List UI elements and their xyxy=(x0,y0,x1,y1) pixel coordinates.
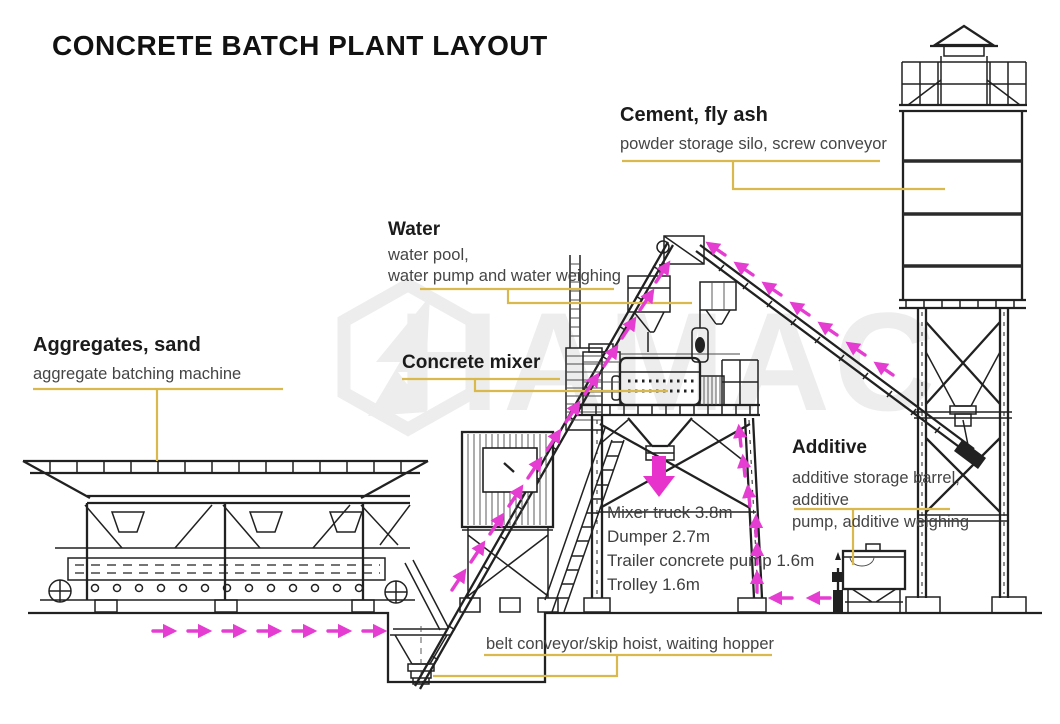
control-room-window xyxy=(483,448,537,492)
label-belt-conveyor: belt conveyor/skip hoist, waiting hopper xyxy=(486,634,774,655)
label-cement: Cement, fly ash powder storage silo, scr… xyxy=(620,104,887,155)
additive-description-1: additive storage barrel, additive xyxy=(792,467,992,511)
label-water: Water water pool, water pump and water w… xyxy=(388,219,621,287)
clearance-list: Mixer truck 3.8m Dumper 2.7m Trailer con… xyxy=(607,501,814,597)
water-description-1: water pool, xyxy=(388,245,621,266)
additive-unit xyxy=(832,544,905,612)
clearance-item: Dumper 2.7m xyxy=(607,525,814,549)
clearance-item: Mixer truck 3.8m xyxy=(607,501,814,525)
clearance-item: Trolley 1.6m xyxy=(607,573,814,597)
concrete-batch-plant-diagram: HAMAC xyxy=(0,0,1060,724)
label-additive: Additive additive storage barrel, additi… xyxy=(792,437,992,533)
additive-heading: Additive xyxy=(792,437,992,459)
water-description-2: water pump and water weighing xyxy=(388,266,621,287)
clearance-item: Trailer concrete pump 1.6m xyxy=(607,549,814,573)
label-aggregates: Aggregates, sand aggregate batching mach… xyxy=(33,334,241,385)
cement-description: powder storage silo, screw conveyor xyxy=(620,134,887,155)
additive-description-2: pump, additive weighing xyxy=(792,511,992,533)
aggregates-heading: Aggregates, sand xyxy=(33,334,241,357)
aggregates-description: aggregate batching machine xyxy=(33,364,241,385)
water-heading: Water xyxy=(388,219,621,241)
label-concrete-mixer: Concrete mixer xyxy=(402,352,540,374)
cement-heading: Cement, fly ash xyxy=(620,104,887,127)
aggregate-batching-machine xyxy=(23,461,448,630)
page-title: CONCRETE BATCH PLANT LAYOUT xyxy=(52,30,548,62)
